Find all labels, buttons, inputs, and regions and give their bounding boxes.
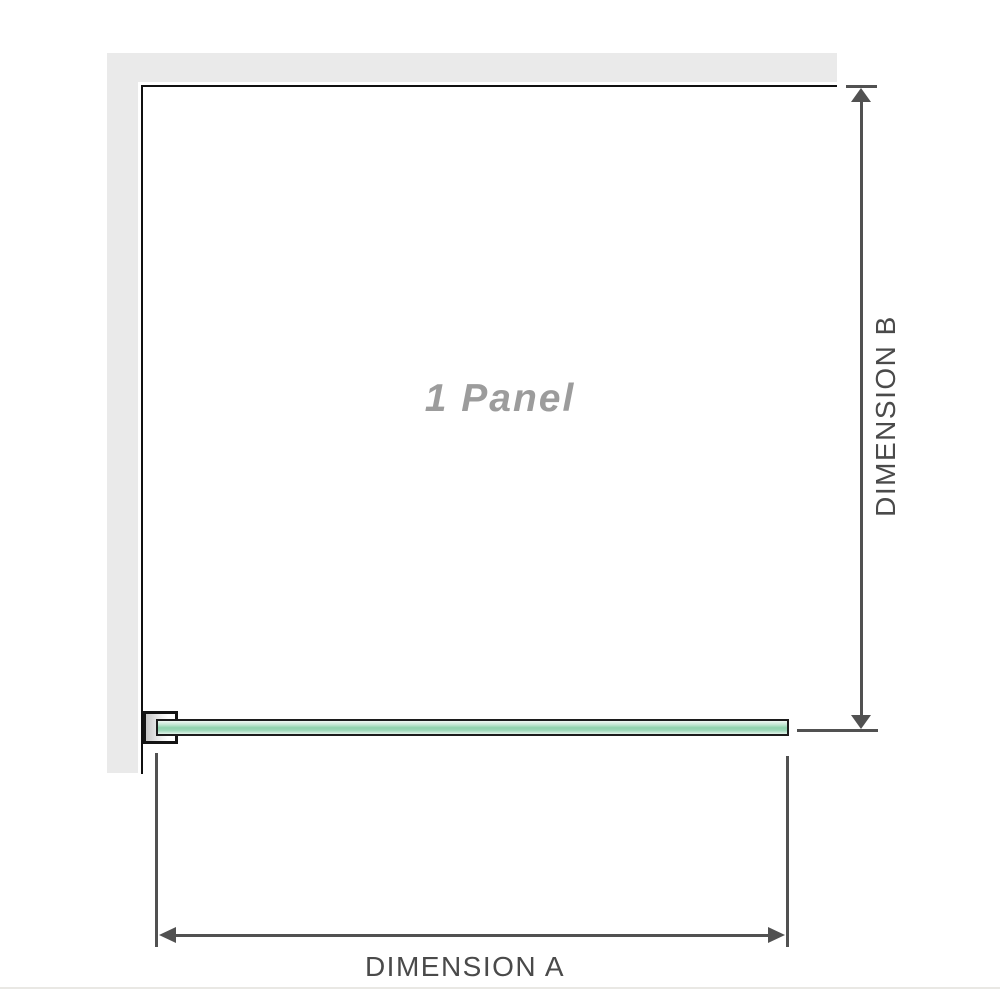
arrow-up-icon	[851, 88, 871, 102]
dimension-b-label: DIMENSION B	[870, 315, 902, 517]
panel-outline	[141, 85, 837, 774]
dimension-a-right-extension	[786, 756, 789, 947]
dimension-a-line	[174, 934, 770, 937]
wall-left	[107, 53, 138, 773]
dimension-b-bottom-tick	[797, 729, 878, 732]
glass-panel	[156, 719, 789, 736]
arrow-down-icon	[851, 715, 871, 729]
dimension-b-line	[860, 98, 863, 719]
dimension-a-left-extension	[155, 753, 158, 947]
arrow-right-icon	[768, 927, 785, 943]
panel-label: 1 Panel	[425, 377, 576, 421]
bottom-divider	[0, 987, 1000, 989]
wall-top	[107, 53, 837, 82]
arrow-left-icon	[159, 927, 176, 943]
dimension-a-label: DIMENSION A	[365, 951, 565, 983]
